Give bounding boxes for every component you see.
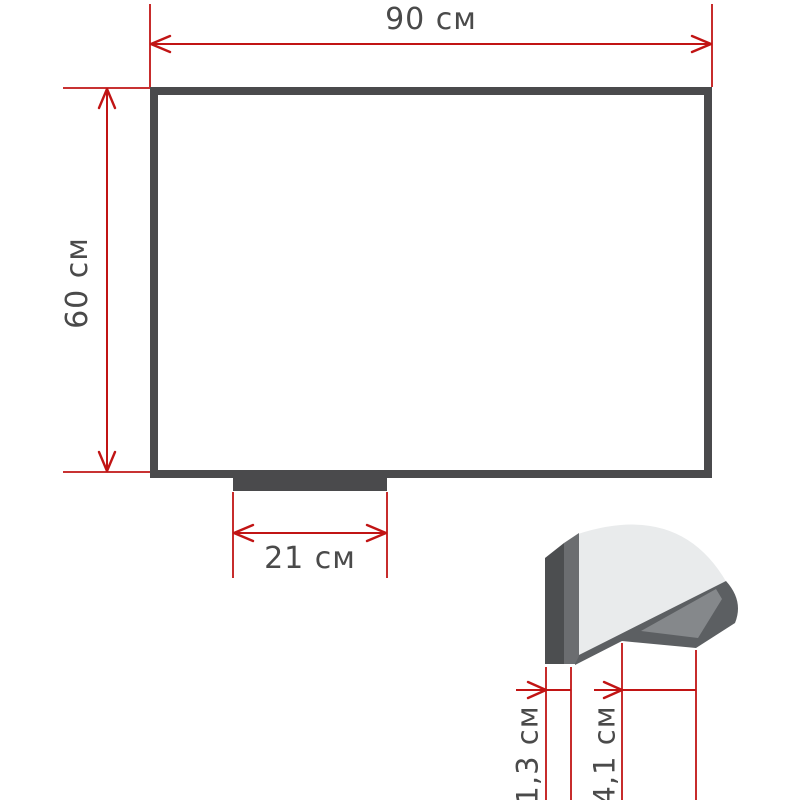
tray-depth-label: 4,1 см — [591, 705, 620, 800]
board-height-label: 60 см — [63, 237, 93, 329]
cross-section-detail — [545, 525, 738, 665]
board-outline — [154, 91, 708, 474]
board-front-view — [154, 91, 708, 491]
frame-profile-front — [545, 543, 564, 664]
board-width-label: 90 см — [385, 5, 477, 35]
tray-width-label: 21 см — [264, 544, 356, 574]
pen-tray-front — [233, 477, 387, 491]
frame-depth-label: 1,3 см — [514, 705, 543, 800]
frame-profile-side — [564, 533, 579, 664]
dimension-diagram: 90 см 60 см 21 см 1,3 см 4,1 см — [0, 0, 800, 800]
diagram-artwork — [0, 0, 800, 800]
